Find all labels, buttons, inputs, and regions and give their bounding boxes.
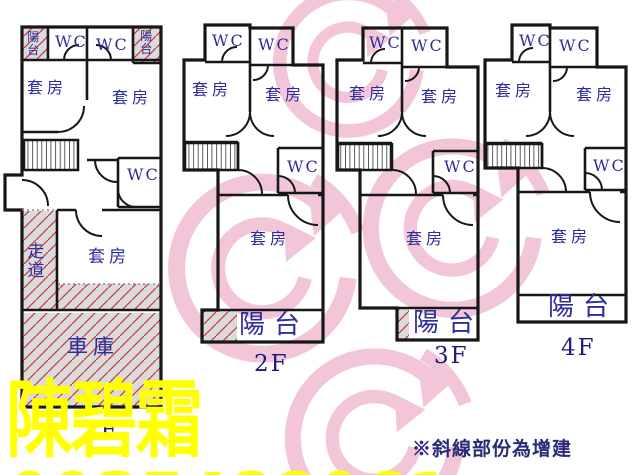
1f-corridor-label: 走道 <box>27 243 45 280</box>
3f-balcony-label: 陽台 <box>413 310 483 336</box>
floor-3f-plan <box>337 28 478 340</box>
floor-2f-plan <box>184 25 323 342</box>
1f-wc-mid-label: WC <box>127 167 160 183</box>
2f-wc-top-left-label: WC <box>212 33 245 49</box>
contact-overlay-text: 陳碧霜0935488061 <box>6 378 513 475</box>
4f-wc-top-left-label: WC <box>519 33 552 49</box>
1f-wc-top-right-label: WC <box>96 37 129 53</box>
4f-stairs <box>486 144 542 168</box>
3f-suite-left-label: 套房 <box>349 86 389 102</box>
4f-suite-left-label: 套房 <box>495 83 535 99</box>
4f-wc-mid-label: WC <box>593 158 626 174</box>
3f-suite-right-label: 套房 <box>421 89 461 105</box>
1f-garage-label: 車庫 <box>67 337 119 358</box>
1f-suite-right-label: 套房 <box>112 90 152 106</box>
3f-wc-top-right-label: WC <box>411 38 444 54</box>
1f-stairs <box>24 140 78 170</box>
2f-suite-left-label: 套房 <box>192 82 232 98</box>
2f-stairs <box>185 143 238 170</box>
3f-wc-top-left-label: WC <box>369 35 402 51</box>
1f-wc-top-left-label: WC <box>55 34 88 50</box>
4f-suite-main-label: 套房 <box>551 229 591 245</box>
4f-balcony-label: 陽台 <box>548 294 618 320</box>
2f-balcony-label: 陽台 <box>239 312 309 338</box>
2f-floor-label: 2F <box>254 353 289 376</box>
1f-balcony-top-right-label: 陽台 <box>140 30 153 56</box>
2f-suite-right-label: 套房 <box>265 87 305 103</box>
3f-floor-label: 3F <box>434 345 469 368</box>
1f-balcony-top-left-label: 陽台 <box>27 31 40 57</box>
1f-suite-main-label: 套房 <box>88 249 130 266</box>
floorplan-sheet: 陽台 WC WC 陽台 套房 套房 WC 走道 套房 車庫 1F WC WC 套… <box>0 0 640 475</box>
1f-suite-left-label: 套房 <box>27 80 67 96</box>
4f-floor-label: 4F <box>561 337 596 360</box>
4f-suite-right-label: 套房 <box>576 87 616 103</box>
2f-wc-top-right-label: WC <box>258 37 291 53</box>
3f-wc-mid-label: WC <box>444 159 477 175</box>
3f-stairs <box>338 144 391 170</box>
2f-suite-main-label: 套房 <box>250 231 290 247</box>
hatch-note-text: ※斜線部份為增建 <box>412 440 572 459</box>
4f-wc-top-right-label: WC <box>559 38 592 54</box>
3f-suite-main-label: 套房 <box>406 231 446 247</box>
2f-wc-mid-label: WC <box>287 159 320 175</box>
